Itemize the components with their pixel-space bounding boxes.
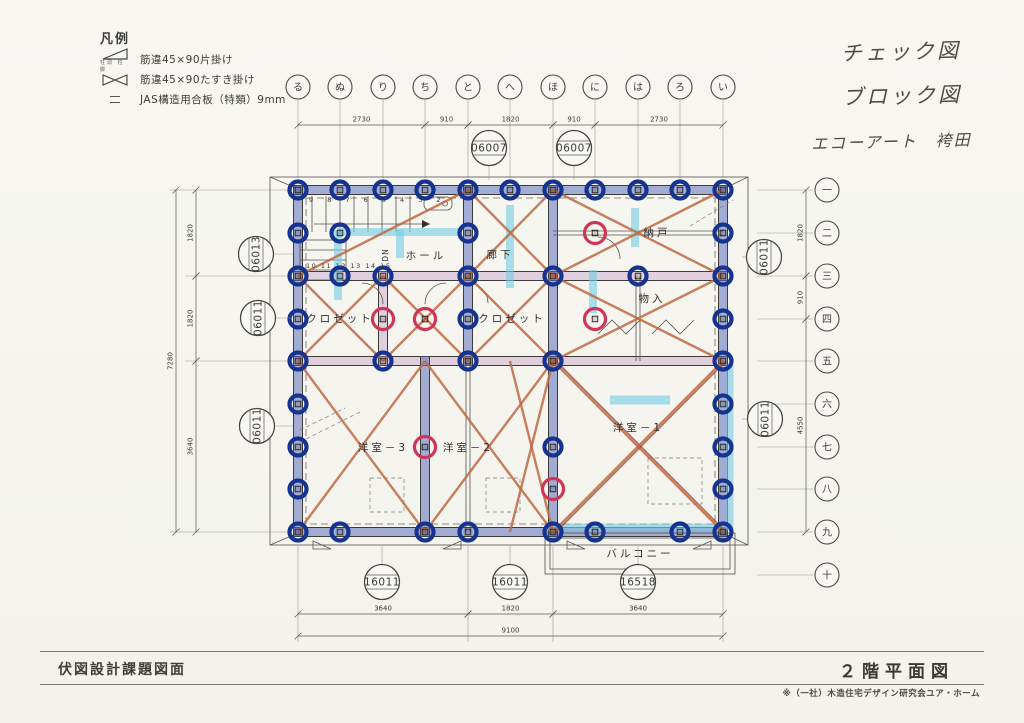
dimension-label: 2730 (650, 116, 668, 124)
grid-bubble-column: い (711, 75, 735, 99)
grid-column-label: と (463, 82, 473, 94)
grid-row-label: 一 (822, 186, 832, 197)
grid-column-label: に (590, 82, 600, 94)
grid-bubble-column: ぬ (328, 75, 352, 99)
grid-bubble-row: 八 (815, 477, 839, 501)
room-label: 廊下 (487, 248, 514, 261)
stair-tread-numbers: 9 8 7 6 5 4 3 2 (309, 196, 447, 204)
room-label: 洋室－2 (443, 441, 493, 454)
drawing-set-title: 伏図設計課題図面 (58, 659, 186, 679)
grid-bubble-column: り (371, 75, 395, 99)
room-label: クロゼット (478, 313, 546, 325)
grid-row-label: 七 (822, 442, 832, 454)
grid-bubble-column: に (583, 75, 607, 99)
room-label: ホール (406, 250, 447, 262)
grid-column-label: へ (505, 83, 515, 94)
grid-bubble-row: 三 (815, 264, 839, 288)
title-block-top-rule (40, 651, 984, 652)
interior-details (300, 196, 735, 574)
sheet-title: ２階平面図 (839, 657, 954, 682)
dimension-label: 1820 (502, 605, 520, 613)
grid-bubble-column: は (626, 75, 650, 99)
grid-row-label: 八 (822, 485, 832, 496)
grid-row-label: 五 (822, 357, 832, 368)
dimension-label: 1820 (502, 116, 520, 124)
dimension-label: 1820 (187, 224, 195, 242)
grid-column-label: ほ (548, 82, 558, 94)
grid-bubble-row: 一 (815, 178, 839, 202)
grid-row-label: 九 (822, 527, 832, 539)
panel-code-label: 06013 (251, 236, 263, 272)
panel-code-bubble: 06007 (471, 131, 507, 181)
dimension-label: 910 (567, 116, 580, 124)
panel-code-label: 16011 (364, 577, 400, 589)
dimension-label: 3640 (374, 605, 392, 613)
panel-code-label: 06007 (471, 143, 507, 155)
grid-bubble-column: る (286, 75, 310, 99)
panel-code-bubble: 06011 (241, 300, 294, 336)
panel-code-bubble: 06011 (240, 408, 294, 444)
scanned-floor-plan-page: 凡例 柱頭 柱脚 筋違45×90片掛け 筋違45×90たすき掛け JAS構造用合… (0, 0, 1024, 723)
credit-note: ※（一社）木造住宅デザイン研究会ユア・ホーム (782, 687, 980, 699)
grid-bubble-row: 七 (815, 435, 839, 459)
dimension-label: 1820 (187, 310, 195, 328)
grid-column-label: り (378, 82, 388, 94)
dimension-label: 2730 (353, 116, 371, 124)
panel-code-label: 16518 (620, 577, 656, 589)
grid-bubble-column: ほ (541, 75, 565, 99)
grid-column-label: ろ (675, 83, 685, 94)
panel-code-label: 16011 (492, 577, 528, 589)
grid-row-label: 四 (822, 315, 832, 326)
dimension-label: 910 (440, 116, 453, 124)
grid-column-label: い (718, 83, 728, 94)
panel-code-bubble: 16011 (364, 546, 400, 600)
grid-column-label: る (293, 82, 303, 94)
stair-dn-label: DN (381, 248, 390, 261)
grid-bubble-row: 二 (815, 221, 839, 245)
title-block-bottom-rule (40, 684, 984, 685)
grid-bubble-column: と (456, 75, 480, 99)
room-label: バルコニー (606, 548, 673, 560)
room-label: 洋室－1 (613, 421, 663, 434)
dimension-label: 4550 (797, 417, 805, 435)
grid-bubble-row: 六 (815, 392, 839, 416)
room-label: クロゼット (306, 313, 374, 325)
dimension-label: 3640 (187, 438, 195, 456)
floor-plan-drawing: 2730910182091027303640182036401820182036… (0, 0, 1024, 723)
grid-column-label: ち (420, 82, 430, 94)
panel-code-label: 06007 (556, 143, 592, 155)
room-label: 物入 (639, 292, 666, 305)
panel-code-label: 06011 (253, 300, 265, 336)
grid-bubble-row: 十 (815, 563, 839, 587)
dimension-label: 1820 (797, 224, 805, 242)
check-ring-red (415, 309, 436, 330)
grid-bubble-row: 五 (815, 349, 839, 373)
grid-row-label: 二 (822, 229, 832, 240)
grid-row-label: 十 (822, 569, 832, 582)
check-ring-red (585, 223, 606, 244)
dimension-label: 9100 (502, 627, 520, 635)
grid-row-label: 三 (822, 272, 832, 283)
grid-bubble-column: へ (498, 75, 522, 99)
panel-code-bubble: 06007 (556, 131, 592, 181)
room-label: 納戸 (644, 226, 671, 239)
panel-code-bubble: 06013 (239, 236, 294, 272)
panel-code-label: 06011 (252, 408, 264, 444)
dimension-label: 3640 (629, 605, 647, 613)
closet-zigzag-mark (652, 320, 694, 334)
grid-row-label: 六 (822, 399, 832, 411)
panel-code-label: 06011 (760, 401, 772, 437)
grid-column-label: は (633, 82, 643, 94)
grid-bubble-column: ち (413, 75, 437, 99)
panel-code-bubble: 16011 (492, 546, 528, 600)
grid-bubble-column: ろ (668, 75, 692, 99)
grid-column-label: ぬ (335, 82, 345, 94)
panel-code-label: 06011 (759, 239, 771, 275)
grid-bubble-row: 四 (815, 307, 839, 331)
room-label: 洋室－3 (358, 441, 408, 454)
stair-tread-numbers: 10 11 12 13 14 15 (306, 262, 391, 270)
dimension-label: 7280 (167, 352, 175, 370)
grid-bubble-row: 九 (815, 520, 839, 544)
dimension-label: 910 (797, 291, 805, 304)
